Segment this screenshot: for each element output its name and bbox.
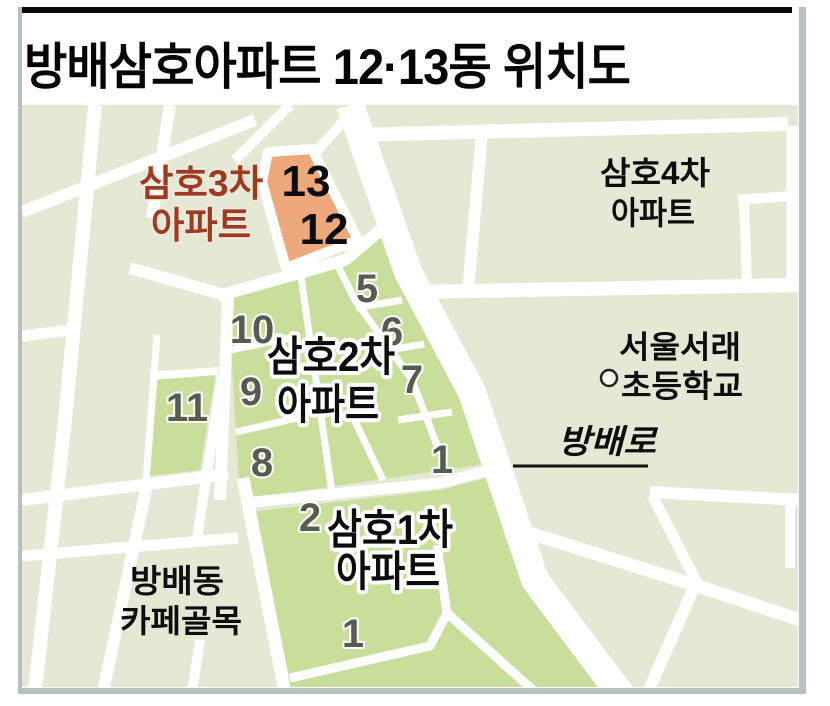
- samho4-label-line2: 아파트: [611, 195, 695, 231]
- road-segment: [22, 330, 70, 336]
- unit-number-12: 12: [300, 205, 349, 254]
- map-area: 삼호3차 아파트 13 12 삼호4차 아파트 5 6 7 10 9 8 11 …: [22, 105, 800, 700]
- right-frame-border: [799, 7, 806, 694]
- page-title: 방배삼호아파트 12·13동 위치도: [24, 39, 630, 95]
- samho1-label-line2: 아파트: [336, 548, 440, 595]
- unit-number-13: 13: [282, 157, 331, 206]
- school-label-line1: 서울서래: [619, 330, 741, 365]
- road-segment: [650, 492, 800, 500]
- district-label-line1: 방배동: [130, 563, 224, 599]
- samho3-label-line2: 아파트: [151, 205, 251, 246]
- map-canvas: 방배삼호아파트 12·13동 위치도: [0, 0, 830, 706]
- unit-number-8: 8: [251, 441, 273, 485]
- bottom-frame-border: [18, 688, 806, 694]
- samho2-label-line1: 삼호2차: [267, 333, 395, 380]
- road-segment: [738, 196, 790, 200]
- unit-number-9: 9: [240, 370, 262, 414]
- unit-number-1-lower: 1: [342, 612, 364, 656]
- left-frame-border: [18, 7, 22, 694]
- unit-number-5: 5: [356, 267, 378, 311]
- unit-number-2: 2: [299, 496, 321, 540]
- unit-number-1-upper: 1: [431, 438, 453, 482]
- district-label-line2: 카페골목: [120, 603, 242, 639]
- samho3-label-line1: 삼호3차: [139, 163, 263, 204]
- road-segment: [744, 202, 747, 284]
- road-minor: [150, 371, 218, 376]
- unit-number-7: 7: [401, 358, 423, 402]
- samho1-label-line1: 삼호1차: [327, 506, 453, 553]
- samho4-label-line1: 삼호4차: [600, 155, 711, 191]
- school-label-line2: 초등학교: [621, 369, 743, 404]
- school-marker-icon: [601, 370, 617, 386]
- road-name-label: 방배로: [558, 423, 659, 460]
- samho2-label-line2: 아파트: [277, 381, 379, 428]
- location-map-page: 방배삼호아파트 12·13동 위치도: [0, 0, 830, 706]
- unit-number-11: 11: [166, 386, 208, 430]
- top-rule: [18, 7, 792, 13]
